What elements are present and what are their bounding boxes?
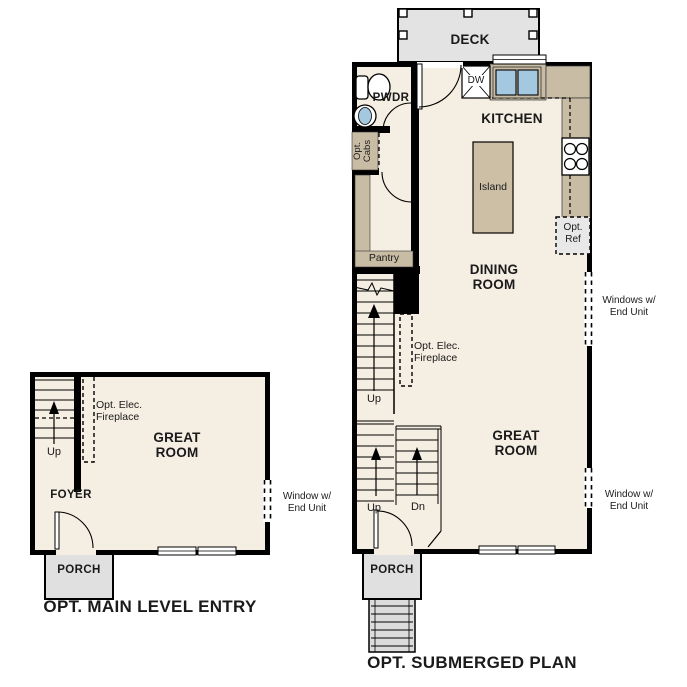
fireplace-label-right: Opt. Elec. Fireplace [414, 340, 470, 364]
pwdr-label: PWDR [368, 92, 414, 105]
right-plan-title: OPT. SUBMERGED PLAN [352, 653, 592, 672]
window-right-upper [584, 272, 593, 346]
building-right [352, 62, 592, 554]
great-room-label-left: GREAT ROOM [140, 430, 214, 460]
window-bottom-right-2 [518, 546, 555, 554]
porch-label-left: PORCH [50, 564, 108, 577]
dishwasher-label: DW [462, 75, 490, 87]
up-label-main: Up [361, 393, 387, 405]
kitchen-window [493, 55, 546, 64]
window-bottom-left-1 [158, 547, 196, 555]
great-room-label-right: GREAT ROOM [479, 428, 553, 458]
left-plan-title: OPT. MAIN LEVEL ENTRY [30, 597, 270, 616]
window-bottom-left-2 [198, 547, 236, 555]
dining-room-label: DINING ROOM [457, 262, 531, 292]
window-end-unit-label-left: Window w/ End Unit [277, 491, 337, 514]
up-label-lower: Up [361, 502, 387, 514]
pantry-label: Pantry [357, 252, 411, 264]
window-end-unit-label-right: Window w/ End Unit [598, 489, 660, 512]
porch-label-right: PORCH [363, 564, 421, 577]
windows-end-unit-label: Windows w/ End Unit [596, 295, 662, 318]
island-label: Island [473, 181, 513, 193]
floorplan-drawing [0, 0, 687, 687]
opt-cabs-label: Opt. Cabs [343, 130, 383, 172]
window-right-lower [584, 468, 593, 508]
window-left-side [263, 480, 272, 522]
foyer-label: FOYER [46, 489, 96, 502]
dn-label: Dn [405, 501, 431, 513]
pwdr-sink-icon [354, 105, 376, 127]
kitchen-label: KITCHEN [470, 111, 554, 126]
kitchen-sink-icon [493, 67, 541, 98]
deck-label: DECK [430, 32, 510, 47]
interior-walls-left [74, 372, 81, 492]
stove-icon [562, 138, 589, 175]
floorplan-canvas: DECK PWDR KITCHEN Island DW Opt. Cabs Pa… [0, 0, 687, 687]
up-label-left-plan: Up [41, 446, 67, 458]
opt-ref-label: Opt. Ref [560, 222, 586, 245]
fireplace-label-left: Opt. Elec. Fireplace [96, 399, 152, 423]
exterior-stairs [369, 598, 415, 652]
window-bottom-right-1 [479, 546, 516, 554]
